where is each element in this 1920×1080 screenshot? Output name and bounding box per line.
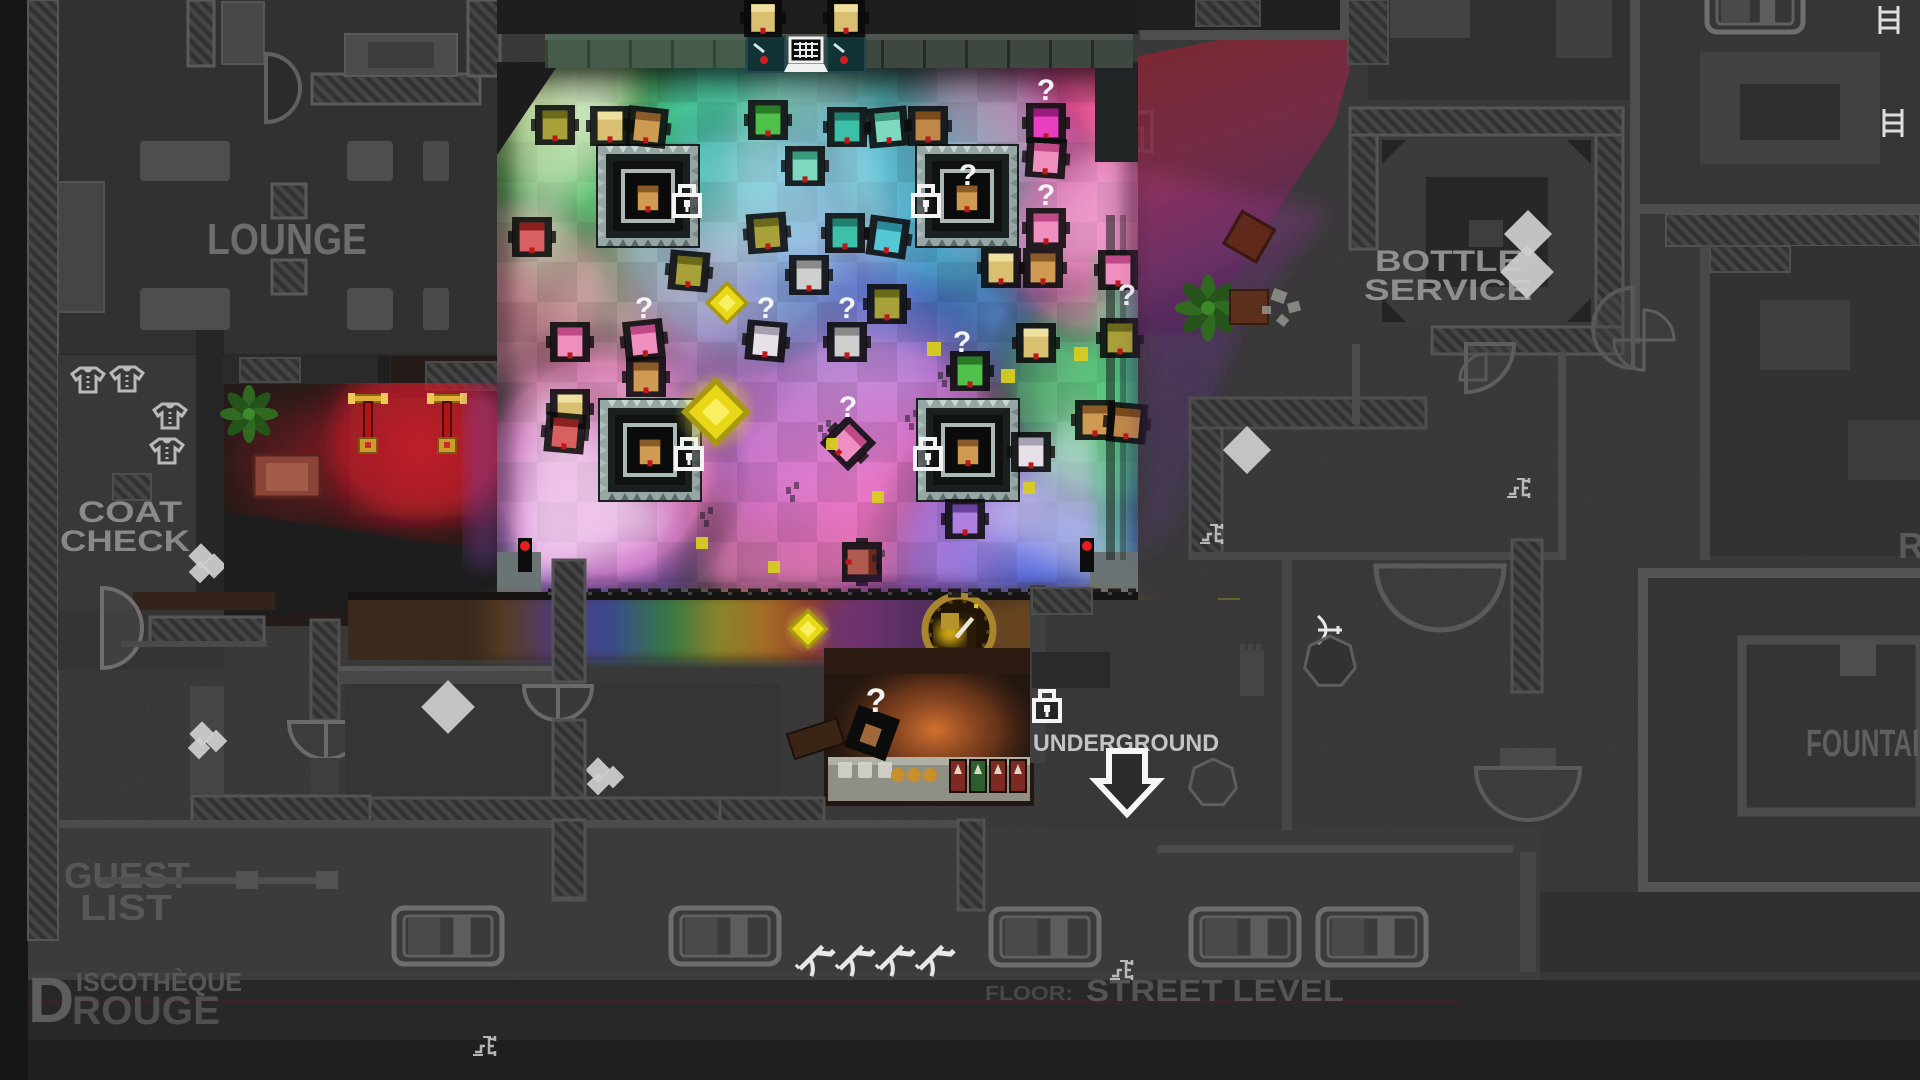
- svg-text:?: ?: [953, 326, 971, 359]
- svg-text:?: ?: [635, 292, 653, 325]
- svg-text:LOUNGE: LOUNGE: [207, 215, 367, 264]
- svg-text:FOUNTAIN: FOUNTAIN: [1806, 723, 1920, 765]
- svg-text:?: ?: [839, 391, 857, 424]
- svg-text:FLOOR:: FLOOR:: [985, 983, 1073, 1005]
- svg-text:CHECK: CHECK: [60, 525, 190, 558]
- svg-text:?: ?: [838, 292, 856, 325]
- svg-text:SERVICE: SERVICE: [1364, 274, 1532, 307]
- svg-text:?: ?: [757, 292, 775, 325]
- svg-text:LIST: LIST: [80, 887, 172, 928]
- svg-text:?: ?: [1037, 74, 1055, 107]
- svg-text:STREET LEVEL: STREET LEVEL: [1086, 973, 1344, 1008]
- svg-text:D: D: [28, 964, 74, 1036]
- svg-text:ROUGE: ROUGE: [72, 989, 220, 1033]
- svg-text:?: ?: [866, 682, 887, 720]
- svg-text:?: ?: [959, 159, 977, 192]
- svg-text:?: ?: [1118, 279, 1136, 312]
- svg-text:RE: RE: [1898, 525, 1920, 566]
- svg-text:?: ?: [1037, 179, 1055, 212]
